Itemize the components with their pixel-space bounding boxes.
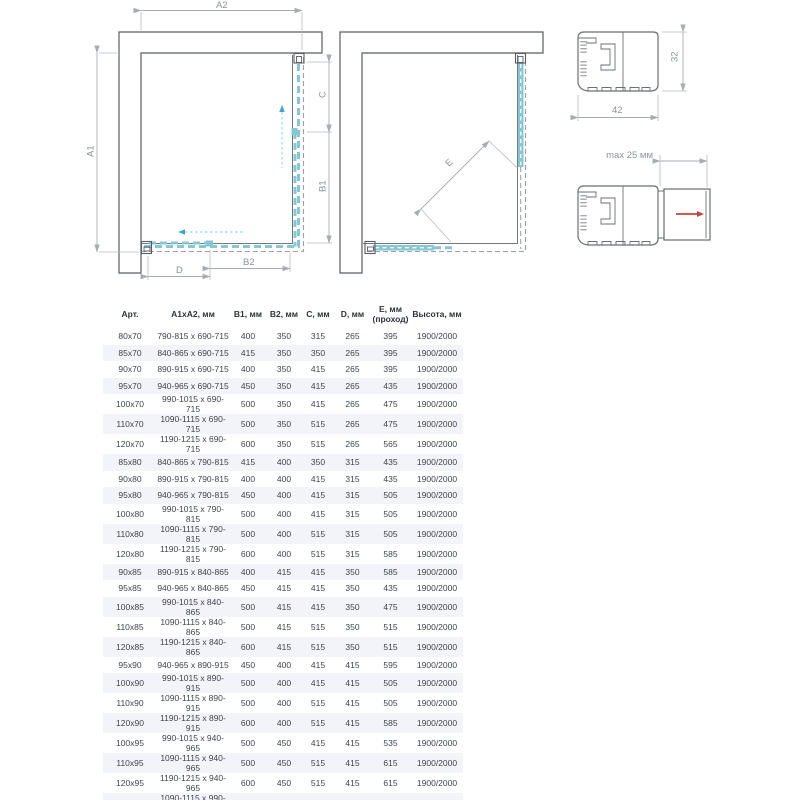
table-cell: 1900/2000 xyxy=(411,753,463,773)
glass-door-open-bottom xyxy=(373,245,434,251)
table-cell: 265 xyxy=(335,328,370,345)
table-cell: 1900/2000 xyxy=(411,414,463,434)
table-cell: 415 xyxy=(301,394,335,414)
table-cell: 500 xyxy=(229,414,267,434)
table-cell: 1900/2000 xyxy=(411,693,463,713)
table-cell: 515 xyxy=(301,544,335,564)
table-cell: 350 xyxy=(335,637,370,657)
col-header-d: D, мм xyxy=(335,302,370,328)
table-cell: 500 xyxy=(229,673,267,693)
table-cell: 1900/2000 xyxy=(411,378,463,395)
dimension-a1: A1 xyxy=(86,53,140,252)
table-row: 90x70890-915 x 690-715400350415265395190… xyxy=(103,361,463,378)
size-table-body: 80x70790-815 x 690-715400350315265395190… xyxy=(103,328,463,800)
table-cell: 350 xyxy=(335,617,370,637)
table-cell: 400 xyxy=(229,361,267,378)
table-cell: 415 xyxy=(267,637,301,657)
table-cell: 500 xyxy=(229,597,267,617)
table-cell: 940-965 x 790-815 xyxy=(157,487,229,504)
table-cell: 400 xyxy=(267,693,301,713)
table-cell: 615 xyxy=(370,773,411,793)
table-cell: 475 xyxy=(370,394,411,414)
wall-bracket-top xyxy=(294,54,304,64)
table-cell: 100x70 xyxy=(103,394,157,414)
table-row: 100x80990-1015 x 790-8155004004153155051… xyxy=(103,504,463,524)
table-cell: 475 xyxy=(370,414,411,434)
table-cell: 1900/2000 xyxy=(411,713,463,733)
table-cell: 1900/2000 xyxy=(411,394,463,414)
table-cell: 1900/2000 xyxy=(411,345,463,362)
spec-sheet: A2 A1 C B1 B2 xyxy=(0,0,800,800)
table-cell: 415 xyxy=(335,713,370,733)
glass-outer-outline xyxy=(367,57,526,252)
table-cell: 350 xyxy=(335,597,370,617)
dimension-a2: A2 xyxy=(141,0,302,50)
table-cell: 1190-1215 x 790-815 xyxy=(157,544,229,564)
table-cell: 585 xyxy=(370,544,411,564)
table-cell: 350 xyxy=(267,414,301,434)
wall-bracket-top-inner xyxy=(518,57,523,63)
table-cell: 940-965 x 840-865 xyxy=(157,580,229,597)
col-header-b2: В2, мм xyxy=(267,302,301,328)
table-cell: 500 xyxy=(229,617,267,637)
table-cell: 435 xyxy=(370,580,411,597)
table-cell: 415 xyxy=(267,617,301,637)
table-cell: 1190-1215 x 840-865 xyxy=(157,637,229,657)
table-cell: 415 xyxy=(301,733,335,753)
table-cell: 575 xyxy=(370,793,411,800)
door-edge-bottom xyxy=(206,241,213,247)
table-cell: 350 xyxy=(267,378,301,395)
table-cell: 415 xyxy=(301,471,335,488)
slide-direction-left-arrow xyxy=(178,229,243,235)
table-cell: 415 xyxy=(301,564,335,581)
table-cell: 1090-1115 x 790-815 xyxy=(157,524,229,544)
table-row: 110x801090-1115 x 790-815500400515315505… xyxy=(103,524,463,544)
table-cell: 265 xyxy=(335,434,370,454)
table-cell: 600 xyxy=(229,713,267,733)
table-cell: 315 xyxy=(335,471,370,488)
table-row: 120x851190-1215 x 840-865600415515350515… xyxy=(103,637,463,657)
table-cell: 90x70 xyxy=(103,361,157,378)
door-edge-right xyxy=(292,128,298,135)
table-cell: 1900/2000 xyxy=(411,657,463,674)
table-cell: 315 xyxy=(335,524,370,544)
table-cell: 1900/2000 xyxy=(411,328,463,345)
table-cell: 350 xyxy=(301,345,335,362)
table-cell: 1900/2000 xyxy=(411,637,463,657)
header-row: Арт. А1хА2, мм В1, мм В2, мм С, мм D, мм… xyxy=(103,302,463,328)
dimension-extension-travel: max 25 мм xyxy=(606,150,707,187)
profile-section-main: 32 42 xyxy=(578,32,687,121)
table-cell: 1090-1115 x 890-915 xyxy=(157,693,229,713)
table-cell: 990-1015 x 840-865 xyxy=(157,597,229,617)
table-cell: 415 xyxy=(229,345,267,362)
table-cell: 85x70 xyxy=(103,345,157,362)
table-cell: 85x80 xyxy=(103,454,157,471)
table-cell: 515 xyxy=(301,713,335,733)
dim-label-32: 32 xyxy=(670,51,681,62)
table-cell: 120x85 xyxy=(103,637,157,657)
col-header-b1: В1, мм xyxy=(229,302,267,328)
table-cell: 100x90 xyxy=(103,673,157,693)
table-cell: 1900/2000 xyxy=(411,504,463,524)
table-cell: 350 xyxy=(301,454,335,471)
table-cell: 400 xyxy=(229,328,267,345)
table-cell: 435 xyxy=(370,454,411,471)
table-cell: 500 xyxy=(229,793,267,800)
table-cell: 415 xyxy=(267,597,301,617)
plan-view-closed: A2 A1 C B1 B2 xyxy=(86,0,333,280)
table-cell: 500 xyxy=(229,394,267,414)
table-cell: 990-1015 x 690-715 xyxy=(157,394,229,414)
table-row: 110x951090-1115 x 940-965500450515415615… xyxy=(103,753,463,773)
table-cell: 415 xyxy=(335,793,370,800)
table-row: 100x70990-1015 x 690-7155003504152654751… xyxy=(103,394,463,414)
dim-label-e: E xyxy=(443,157,455,169)
table-cell: 315 xyxy=(335,544,370,564)
table-cell: 990-1015 x 940-965 xyxy=(157,733,229,753)
table-cell: 505 xyxy=(370,673,411,693)
table-cell: 400 xyxy=(267,673,301,693)
table-cell: 350 xyxy=(335,564,370,581)
table-cell: 350 xyxy=(267,434,301,454)
table-cell: 415 xyxy=(267,564,301,581)
table-cell: 265 xyxy=(335,378,370,395)
table-cell: 400 xyxy=(267,524,301,544)
table-cell: 505 xyxy=(370,487,411,504)
dim-label-b2: B2 xyxy=(243,257,255,268)
table-cell: 110x85 xyxy=(103,617,157,637)
table-cell: 1090-1115 x 940-965 xyxy=(157,753,229,773)
table-cell: 990-1015 x 890-915 xyxy=(157,673,229,693)
glass-fixed-panel xyxy=(144,62,299,247)
dimension-c: C xyxy=(307,62,332,132)
table-cell: 120x95 xyxy=(103,773,157,793)
dim-label-a1: A1 xyxy=(86,145,97,157)
glass-door-open-right xyxy=(518,62,524,167)
wall xyxy=(119,32,322,273)
table-cell: 415 xyxy=(301,504,335,524)
table-cell: 515 xyxy=(301,753,335,773)
dimension-b1: B1 xyxy=(307,132,332,243)
table-cell: 315 xyxy=(301,328,335,345)
table-cell: 265 xyxy=(335,394,370,414)
table-cell: 515 xyxy=(301,434,335,454)
table-cell: 110x80 xyxy=(103,524,157,544)
table-cell: 415 xyxy=(335,753,370,773)
table-cell: 515 xyxy=(301,414,335,434)
glass-outer-outline xyxy=(141,57,304,252)
table-cell: 415 xyxy=(335,673,370,693)
table-cell: 415 xyxy=(301,597,335,617)
table-cell: 595 xyxy=(370,657,411,674)
table-cell: 1190-1215 x 690-715 xyxy=(157,434,229,454)
size-table-grid: Арт. А1хА2, мм В1, мм В2, мм С, мм D, мм… xyxy=(103,302,463,800)
table-row: 95x70940-965 x 690-715450350415265435190… xyxy=(103,378,463,395)
table-cell: 515 xyxy=(370,637,411,657)
table-cell: 400 xyxy=(267,504,301,524)
table-cell: 315 xyxy=(335,504,370,524)
table-cell: 90x80 xyxy=(103,471,157,488)
table-cell: 415 xyxy=(335,693,370,713)
table-cell: 415 xyxy=(335,657,370,674)
table-cell: 415 xyxy=(301,673,335,693)
table-row: 95x85940-965 x 840-865450415415350435190… xyxy=(103,580,463,597)
table-cell: 505 xyxy=(370,693,411,713)
dimension-b2: B2 xyxy=(210,250,290,280)
table-cell: 1900/2000 xyxy=(411,580,463,597)
wall-bracket-bottom-inner xyxy=(368,247,374,251)
table-cell: 265 xyxy=(335,414,370,434)
table-cell: 990-1015 x 790-815 xyxy=(157,504,229,524)
table-cell: 400 xyxy=(267,454,301,471)
table-cell: 90x85 xyxy=(103,564,157,581)
table-cell: 500 xyxy=(229,733,267,753)
col-header-c: С, мм xyxy=(301,302,335,328)
table-row: 110x901090-1115 x 890-915500400515415505… xyxy=(103,693,463,713)
dimension-profile-height: 32 xyxy=(662,32,687,91)
table-cell: 400 xyxy=(229,564,267,581)
dim-label-a2: A2 xyxy=(216,0,228,11)
table-cell: 500 xyxy=(229,524,267,544)
table-cell: 585 xyxy=(370,713,411,733)
table-cell: 120x70 xyxy=(103,434,157,454)
table-cell: 840-865 x 790-815 xyxy=(157,454,229,471)
table-cell: 415 xyxy=(301,657,335,674)
table-cell: 450 xyxy=(267,733,301,753)
table-cell: 615 xyxy=(370,753,411,773)
table-cell: 400 xyxy=(267,471,301,488)
table-cell: 515 xyxy=(301,617,335,637)
table-cell: 395 xyxy=(370,328,411,345)
table-cell: 100x85 xyxy=(103,597,157,617)
dim-label-d: D xyxy=(176,265,183,276)
table-cell: 1900/2000 xyxy=(411,793,463,800)
table-cell: 415 xyxy=(335,773,370,793)
table-cell: 265 xyxy=(335,361,370,378)
table-row: 95x80940-965 x 790-815450400415315505190… xyxy=(103,487,463,504)
table-cell: 450 xyxy=(229,657,267,674)
table-cell: 400 xyxy=(267,713,301,733)
table-cell: 400 xyxy=(229,471,267,488)
enclosure-inner-edge xyxy=(142,55,293,244)
table-cell: 450 xyxy=(267,773,301,793)
table-cell: 890-915 x 790-815 xyxy=(157,471,229,488)
table-cell: 1900/2000 xyxy=(411,597,463,617)
table-row: 110x701090-1115 x 690-715500350515265475… xyxy=(103,414,463,434)
table-cell: 1090-1115 x 990-1015 xyxy=(157,793,229,800)
table-cell: 110x100 xyxy=(103,793,157,800)
table-cell: 1900/2000 xyxy=(411,617,463,637)
table-cell: 110x95 xyxy=(103,753,157,773)
table-cell: 415 xyxy=(301,378,335,395)
table-cell: 350 xyxy=(267,394,301,414)
table-cell: 1090-1115 x 690-715 xyxy=(157,414,229,434)
table-cell: 415 xyxy=(267,580,301,597)
table-cell: 395 xyxy=(370,361,411,378)
table-cell: 1900/2000 xyxy=(411,434,463,454)
dimension-profile-width: 42 xyxy=(578,95,658,121)
table-cell: 80x70 xyxy=(103,328,157,345)
technical-drawings: A2 A1 C B1 B2 xyxy=(0,0,800,300)
table-cell: 1900/2000 xyxy=(411,564,463,581)
table-cell: 350 xyxy=(267,345,301,362)
size-table: Арт. А1хА2, мм В1, мм В2, мм С, мм D, мм… xyxy=(103,302,447,800)
table-cell: 515 xyxy=(370,617,411,637)
table-cell: 265 xyxy=(335,345,370,362)
table-row: 95x90940-965 x 890-915450400415415595190… xyxy=(103,657,463,674)
table-cell: 475 xyxy=(370,597,411,617)
table-cell: 350 xyxy=(335,580,370,597)
table-cell: 450 xyxy=(267,753,301,773)
table-cell: 400 xyxy=(267,487,301,504)
table-cell: 120x90 xyxy=(103,713,157,733)
table-cell: 120x80 xyxy=(103,544,157,564)
table-cell: 790-815 x 690-715 xyxy=(157,328,229,345)
table-row: 85x70840-865 x 690-715415350350265395190… xyxy=(103,345,463,362)
table-cell: 940-965 x 890-915 xyxy=(157,657,229,674)
table-row: 90x80890-915 x 790-815400400415315435190… xyxy=(103,471,463,488)
table-cell: 315 xyxy=(335,487,370,504)
table-cell: 940-965 x 690-715 xyxy=(157,378,229,395)
size-table-header: Арт. А1хА2, мм В1, мм В2, мм С, мм D, мм… xyxy=(103,302,463,328)
table-row: 120x951190-1215 x 940-965600450515415615… xyxy=(103,773,463,793)
table-cell: 395 xyxy=(370,345,411,362)
table-row: 80x70790-815 x 690-715400350315265395190… xyxy=(103,328,463,345)
table-cell: 450 xyxy=(229,378,267,395)
table-cell: 95x70 xyxy=(103,378,157,395)
table-cell: 505 xyxy=(370,504,411,524)
table-cell: 315 xyxy=(335,454,370,471)
table-cell: 1900/2000 xyxy=(411,361,463,378)
table-cell: 585 xyxy=(370,564,411,581)
wall-bracket-top-inner xyxy=(297,57,302,63)
dimension-d: D xyxy=(148,256,210,280)
table-cell: 435 xyxy=(370,378,411,395)
passage-dimension-e: E xyxy=(421,141,518,242)
table-cell: 400 xyxy=(267,544,301,564)
table-cell: 435 xyxy=(370,471,411,488)
dim-label-42: 42 xyxy=(612,105,623,116)
table-cell: 100x95 xyxy=(103,733,157,753)
table-cell: 500 xyxy=(267,793,301,800)
table-cell: 350 xyxy=(267,361,301,378)
table-cell: 890-915 x 690-715 xyxy=(157,361,229,378)
table-cell: 1190-1215 x 940-965 xyxy=(157,773,229,793)
table-cell: 505 xyxy=(370,524,411,544)
table-row: 100x90990-1015 x 890-9155004004154155051… xyxy=(103,673,463,693)
table-cell: 840-865 x 690-715 xyxy=(157,345,229,362)
table-cell: 515 xyxy=(301,637,335,657)
dim-label-c: C xyxy=(318,91,329,98)
table-cell: 1190-1215 x 890-915 xyxy=(157,713,229,733)
table-row: 120x701190-1215 x 690-715600350515265565… xyxy=(103,434,463,454)
col-header-art: Арт. xyxy=(103,302,157,328)
table-cell: 415 xyxy=(301,487,335,504)
table-cell: 110x70 xyxy=(103,414,157,434)
table-cell: 400 xyxy=(267,657,301,674)
table-cell: 95x90 xyxy=(103,657,157,674)
table-cell: 415 xyxy=(335,733,370,753)
table-cell: 500 xyxy=(229,504,267,524)
table-cell: 1900/2000 xyxy=(411,773,463,793)
table-cell: 515 xyxy=(301,793,335,800)
table-row: 100x85990-1015 x 840-8655004154153504751… xyxy=(103,597,463,617)
table-row: 110x1001090-1115 x 990-10155005005154155… xyxy=(103,793,463,800)
table-cell: 1900/2000 xyxy=(411,524,463,544)
table-cell: 1900/2000 xyxy=(411,673,463,693)
profile-section-adjustable: max 25 мм xyxy=(578,150,710,245)
table-row: 110x851090-1115 x 840-865500415515350515… xyxy=(103,617,463,637)
dim-label-max25: max 25 мм xyxy=(606,150,653,161)
table-cell: 500 xyxy=(229,753,267,773)
table-row: 85x80840-865 x 790-815415400350315435190… xyxy=(103,454,463,471)
enclosure-inner-edge xyxy=(363,55,518,244)
table-cell: 535 xyxy=(370,733,411,753)
table-cell: 1900/2000 xyxy=(411,733,463,753)
table-cell: 600 xyxy=(229,544,267,564)
table-cell: 450 xyxy=(229,487,267,504)
table-row: 90x85890-915 x 840-865400415415350585190… xyxy=(103,564,463,581)
table-row: 120x801190-1215 x 790-815600400515315585… xyxy=(103,544,463,564)
table-cell: 515 xyxy=(301,773,335,793)
table-row: 120x901190-1215 x 890-915600400515415585… xyxy=(103,713,463,733)
table-cell: 450 xyxy=(229,580,267,597)
wall xyxy=(340,32,543,273)
table-cell: 100x80 xyxy=(103,504,157,524)
table-cell: 415 xyxy=(301,580,335,597)
col-header-height: Высота, мм xyxy=(411,302,463,328)
table-cell: 500 xyxy=(229,693,267,713)
slide-direction-up-arrow xyxy=(279,105,285,168)
table-cell: 110x90 xyxy=(103,693,157,713)
table-cell: 95x80 xyxy=(103,487,157,504)
table-cell: 890-915 x 840-865 xyxy=(157,564,229,581)
dim-label-b1: B1 xyxy=(318,180,329,192)
col-header-e: Е, мм (проход) xyxy=(370,302,411,328)
plan-view-open: E xyxy=(340,32,543,273)
table-cell: 1900/2000 xyxy=(411,454,463,471)
table-cell: 600 xyxy=(229,637,267,657)
table-cell: 565 xyxy=(370,434,411,454)
table-cell: 515 xyxy=(301,524,335,544)
table-cell: 600 xyxy=(229,773,267,793)
table-cell: 95x85 xyxy=(103,580,157,597)
table-cell: 1900/2000 xyxy=(411,471,463,488)
table-cell: 350 xyxy=(267,328,301,345)
table-cell: 1090-1115 x 840-865 xyxy=(157,617,229,637)
table-cell: 415 xyxy=(229,454,267,471)
col-header-a1xa2: А1хА2, мм xyxy=(157,302,229,328)
table-cell: 1900/2000 xyxy=(411,544,463,564)
table-cell: 515 xyxy=(301,693,335,713)
table-cell: 1900/2000 xyxy=(411,487,463,504)
table-cell: 415 xyxy=(301,361,335,378)
table-cell: 600 xyxy=(229,434,267,454)
table-row: 100x95990-1015 x 940-9655004504154155351… xyxy=(103,733,463,753)
